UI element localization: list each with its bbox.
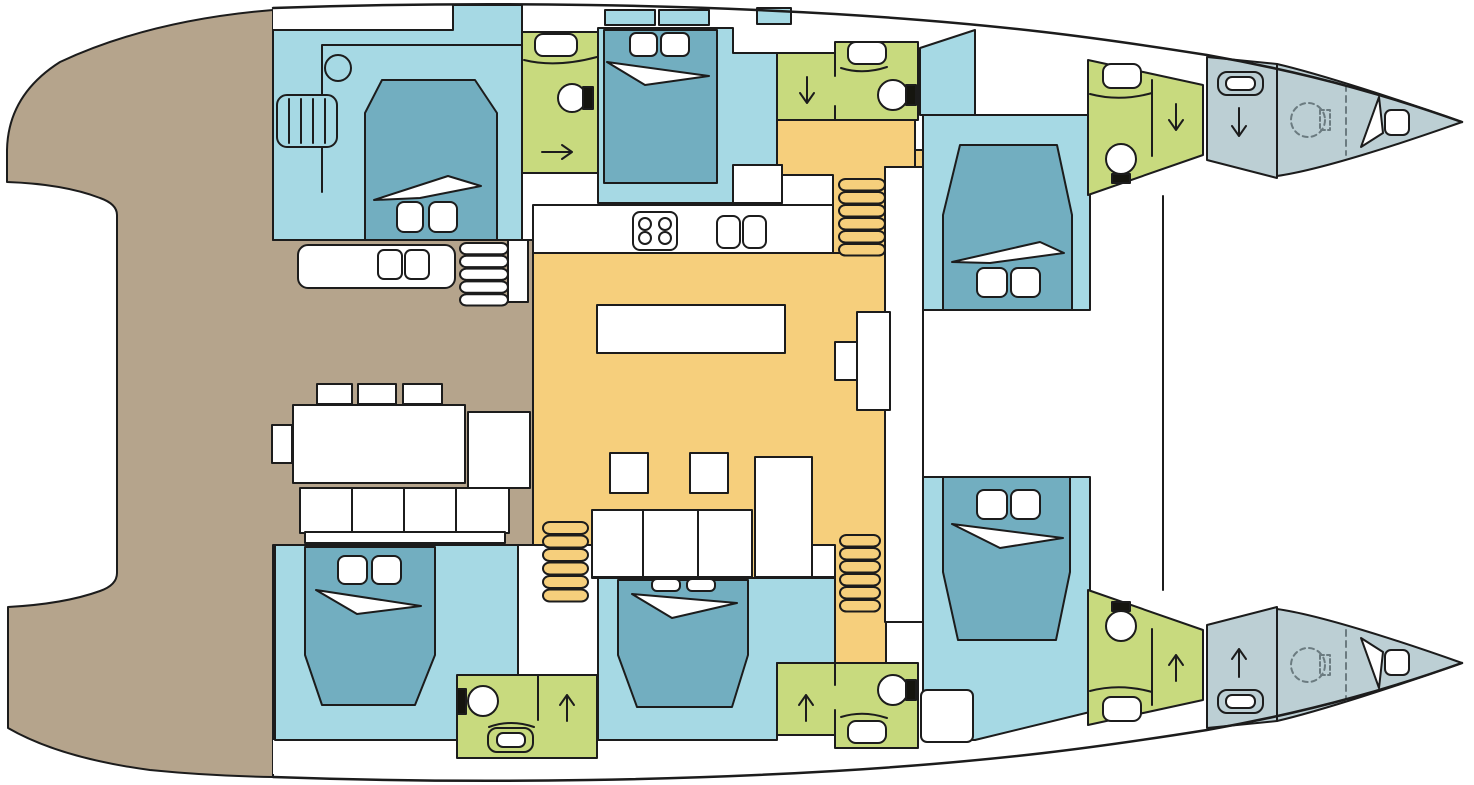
bath-bbow-cistern (1112, 602, 1130, 611)
owner-stool (325, 55, 351, 81)
fwdstbd-pillow-a (977, 268, 1007, 297)
bath-tl-toilet (558, 84, 586, 112)
deck-plan-canvas (0, 0, 1474, 785)
salon-chaise (755, 457, 812, 577)
galley-counter (533, 205, 833, 253)
midlower-pillow-a (652, 579, 680, 591)
salon-sofa (592, 510, 752, 577)
dining-chair-b (358, 384, 396, 404)
dining-bench (468, 412, 530, 488)
galley-sink-l (717, 216, 740, 248)
dining-chair-c (403, 384, 442, 404)
bath-tm-cistern (906, 85, 916, 105)
cockpit-sofa-cushion-a (378, 250, 402, 279)
galley-block (733, 165, 782, 203)
owner-steps-side (508, 240, 528, 302)
bath-bl-sink-basin (497, 733, 525, 747)
bath-bbow-toilet (1106, 611, 1136, 641)
midlower-pillow-b (687, 579, 715, 591)
dining-chair-left (272, 425, 292, 463)
cabin-stbd-fwd-wedge (920, 30, 975, 115)
bath-bbow-sink (1103, 697, 1141, 721)
cockpit-ledge (305, 532, 505, 543)
owner-wardrobe (277, 95, 337, 147)
owner-pillow-a (397, 202, 423, 232)
fwdlower-step-box (921, 690, 973, 742)
bath-bl-toilet (468, 686, 498, 716)
aftport-pillow-a (338, 556, 367, 584)
bath-bm-cistern (906, 680, 916, 700)
nav-seat (835, 342, 857, 380)
bath-tl-sink (535, 34, 577, 56)
cockpit-sofa (298, 245, 455, 288)
dining-chair-a (317, 384, 352, 404)
deck-hatch-a (605, 10, 655, 25)
bath-tbow-toilet (1106, 144, 1136, 174)
fwdport-bed (604, 30, 717, 183)
stairs-bottom-hull (840, 535, 880, 612)
owner-cabin-steps (460, 243, 508, 306)
salon-table (597, 305, 785, 353)
aftport-pillow-b (372, 556, 401, 584)
salon-armchair-a (610, 453, 648, 493)
bow-bottom-hatch (1385, 650, 1409, 675)
galley-sink-r (743, 216, 766, 248)
bath-bm-toilet (878, 675, 908, 705)
bath-bm-sink (848, 721, 886, 743)
bath-tm-sink (848, 42, 886, 64)
salon-armchair-b (690, 453, 728, 493)
stairs-left-hull (543, 522, 588, 602)
aftport-bed (305, 547, 435, 705)
crew-area-bottom (1207, 607, 1277, 728)
fwdlower-pillow-b (1011, 490, 1040, 519)
bow-peak-top (1277, 64, 1462, 176)
fwdport-pillow-a (630, 33, 657, 56)
bath-bl-cistern (457, 689, 466, 714)
deck-plan-svg (0, 0, 1474, 785)
crew-bottom-sink-basin (1226, 695, 1255, 708)
owner-pillow-b (429, 202, 457, 232)
fwdlower-pillow-a (977, 490, 1007, 519)
bath-tbow-cistern (1112, 174, 1130, 183)
bow-top-hatch (1385, 110, 1409, 135)
fwdstbd-pillow-b (1011, 268, 1040, 297)
deck-hatch-b (659, 10, 709, 25)
dining-table (293, 405, 465, 483)
bath-tm-toilet (878, 80, 908, 110)
crew-top-sink-basin (1226, 77, 1255, 90)
bath-tbow-sink (1103, 64, 1141, 88)
stairs-top-hull (839, 179, 885, 256)
fwdport-pillow-b (661, 33, 689, 56)
bath-tl-cistern (583, 87, 593, 109)
stove (633, 212, 677, 250)
bow-peak-bottom (1277, 609, 1462, 721)
crew-area-top (1207, 57, 1277, 178)
cockpit-sofa-cushion-b (405, 250, 429, 279)
nav-desk (857, 312, 890, 410)
